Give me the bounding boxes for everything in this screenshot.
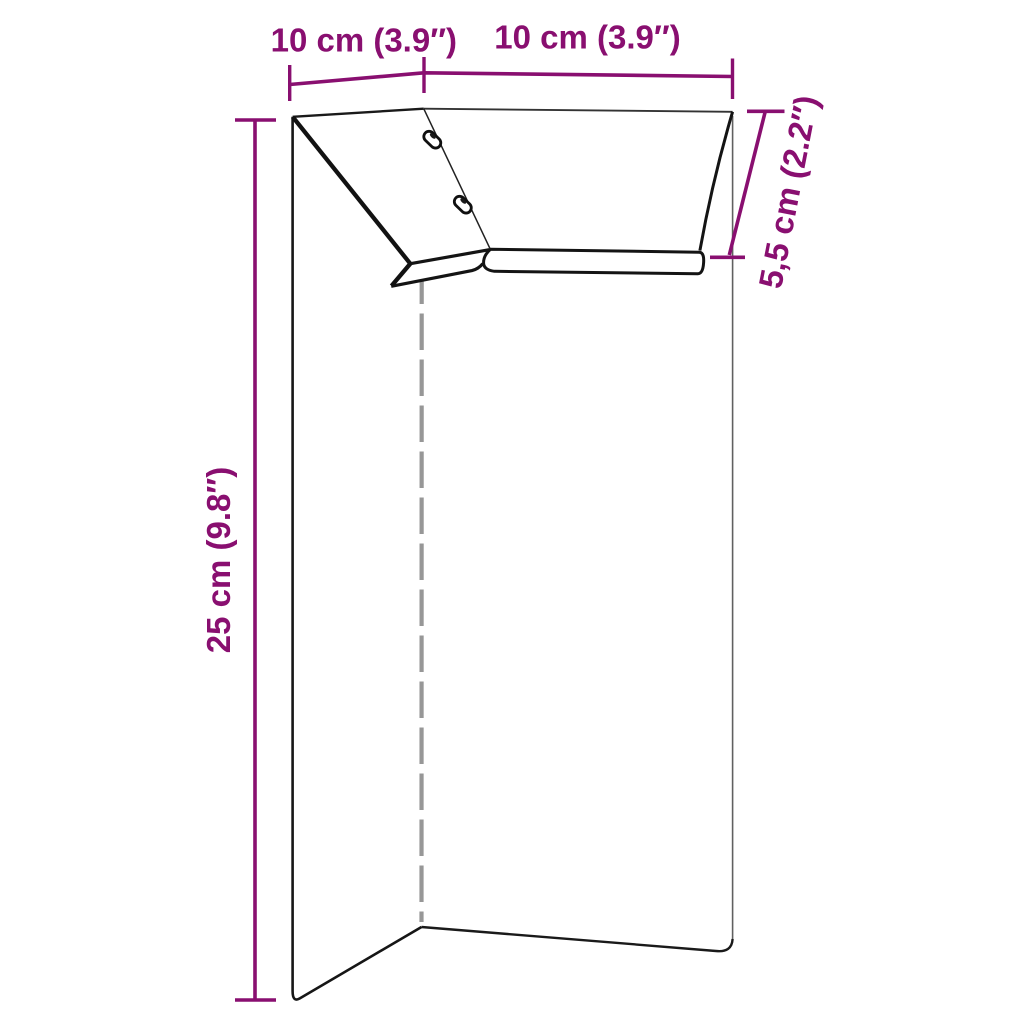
- svg-text:10 cm (3.9″): 10 cm (3.9″): [271, 22, 457, 59]
- svg-text:25 cm (9.8″): 25 cm (9.8″): [200, 467, 237, 653]
- svg-text:10 cm (3.9″): 10 cm (3.9″): [494, 18, 680, 55]
